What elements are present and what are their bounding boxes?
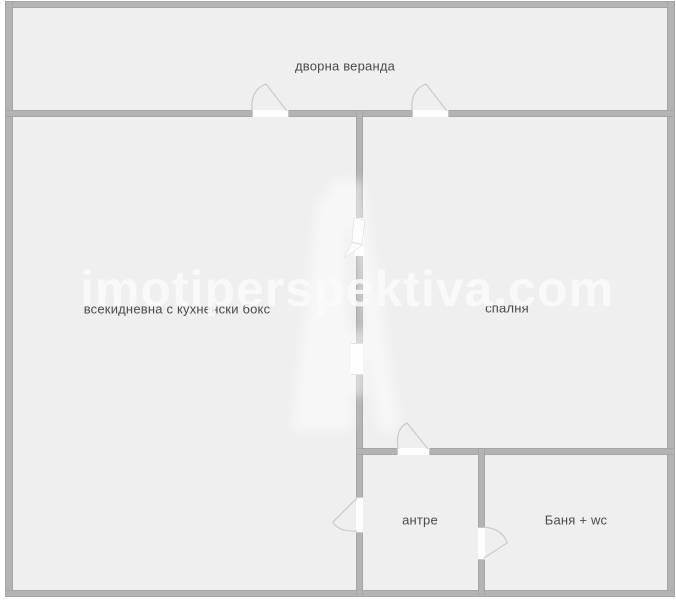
room-label-veranda: дворна веранда xyxy=(295,59,395,74)
wall-outer-right xyxy=(667,1,675,597)
floor-plan: дворна веранда всекидневна с кухненски б… xyxy=(0,0,676,600)
central-wall-pass-through xyxy=(351,343,363,375)
veranda-door-left-slab xyxy=(252,110,289,117)
wall-veranda-separator xyxy=(5,110,675,117)
room-label-hallway: антре xyxy=(402,513,438,528)
bedroom-door-slab xyxy=(397,448,430,455)
wall-bathroom-separator xyxy=(478,448,485,597)
wall-outer-left xyxy=(5,1,13,597)
central-wall-opening xyxy=(355,218,364,256)
living-room-door-slab xyxy=(356,497,363,533)
watermark-text: imotiperspektiva.com xyxy=(80,260,614,318)
bathroom-door-slab xyxy=(478,527,485,560)
wall-outer-bottom xyxy=(5,590,675,597)
wall-outer-top xyxy=(5,1,675,8)
room-label-bathroom: Баня + wc xyxy=(545,513,607,528)
veranda-door-right-slab xyxy=(412,110,449,117)
